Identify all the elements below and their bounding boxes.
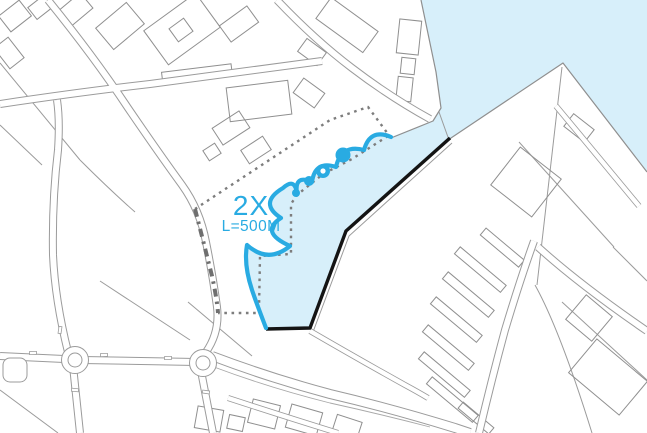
quay-circle-large <box>336 148 351 163</box>
building <box>293 78 325 108</box>
turning-loop <box>3 358 27 382</box>
crossing-tick <box>100 353 107 356</box>
map-canvas: 2X L=500M <box>0 0 647 433</box>
site-plan-map: 2X L=500M <box>0 0 647 433</box>
building <box>226 80 292 121</box>
street-main-diagonal <box>48 0 218 352</box>
parcel-line <box>0 390 58 433</box>
crossing-tick <box>58 326 62 333</box>
water-body <box>246 0 647 328</box>
plan-label-title: 2X <box>233 190 269 221</box>
roundabout-east-island <box>196 356 210 370</box>
building <box>203 143 221 161</box>
building <box>212 111 250 145</box>
building <box>491 147 562 217</box>
building-courtyard <box>144 0 220 65</box>
harbor-water-layer <box>246 0 647 328</box>
building-courtyard-inner <box>169 18 193 42</box>
parcel-line <box>562 302 647 380</box>
quay-circle-small <box>292 189 300 197</box>
building <box>227 414 246 431</box>
row-building <box>430 297 482 342</box>
quay-circle-medium <box>304 176 314 186</box>
row-building <box>442 272 494 317</box>
building <box>0 37 24 69</box>
crossing-tick <box>71 388 78 392</box>
crossing-tick <box>202 390 209 394</box>
roundabout-west-island <box>68 353 82 367</box>
parcel-line <box>100 281 190 340</box>
street-north <box>277 0 430 119</box>
building <box>219 6 258 42</box>
quay-circle-donut-hole <box>320 168 325 173</box>
parcel-line <box>80 160 135 212</box>
row-building <box>454 247 506 292</box>
building <box>396 19 421 55</box>
crossing-tick <box>164 356 171 359</box>
building <box>241 136 272 164</box>
parcel-line <box>535 285 592 433</box>
parcel-line <box>0 125 42 165</box>
crossing-tick <box>29 351 36 354</box>
building <box>0 0 31 32</box>
parcel-line <box>0 63 80 160</box>
building <box>400 57 416 74</box>
row-building <box>422 325 474 370</box>
row-building <box>480 228 524 267</box>
row-building <box>418 352 470 397</box>
building <box>569 339 647 415</box>
plan-label-length: L=500M <box>222 218 281 235</box>
building <box>96 2 145 49</box>
row-building <box>426 377 478 422</box>
parcel-line <box>613 247 647 281</box>
